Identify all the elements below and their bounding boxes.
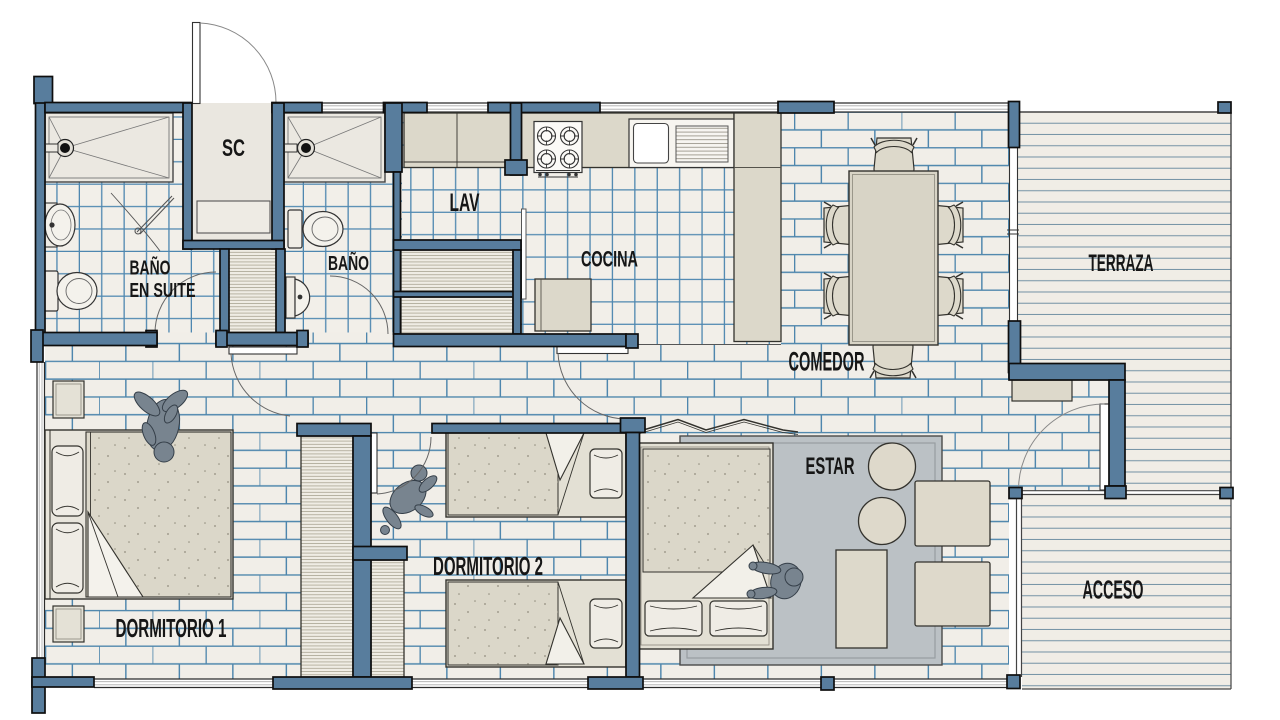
svg-text:TERRAZA: TERRAZA [1089, 250, 1154, 277]
svg-text:DORMITORIO 1: DORMITORIO 1 [116, 615, 227, 643]
svg-text:LAV: LAV [450, 189, 480, 217]
svg-text:COMEDOR: COMEDOR [789, 347, 865, 377]
svg-text:SC: SC [222, 135, 245, 162]
svg-text:DORMITORIO 2: DORMITORIO 2 [433, 553, 543, 581]
svg-text:BAÑO: BAÑO [328, 252, 369, 275]
svg-text:COCINA: COCINA [581, 247, 638, 272]
svg-text:ACCESO: ACCESO [1083, 575, 1144, 605]
svg-text:EN SUITE: EN SUITE [130, 280, 196, 302]
svg-text:BAÑO: BAÑO [130, 257, 171, 280]
svg-text:ESTAR: ESTAR [806, 453, 855, 480]
